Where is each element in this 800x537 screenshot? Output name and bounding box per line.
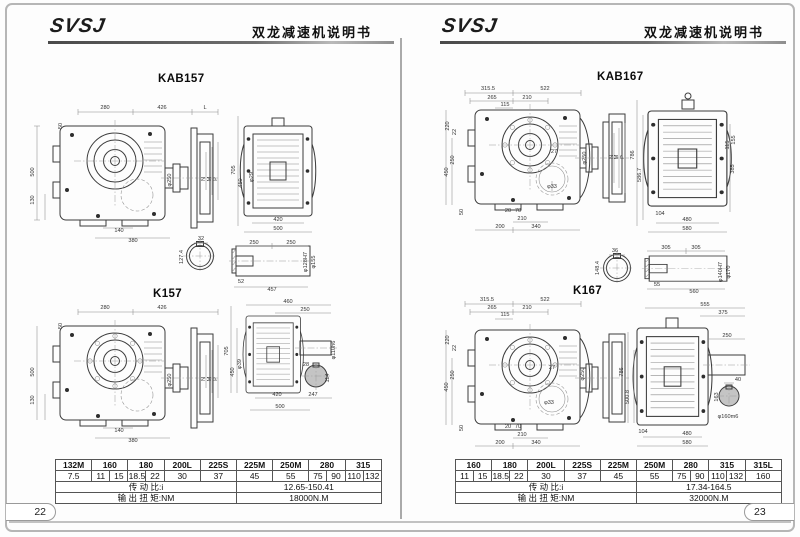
power-row: 7.5 11 15 18.5 22 30 37 45 55 75 90 110 … <box>56 471 382 482</box>
ratio-label: 传 动 比:i <box>456 482 637 493</box>
dim-label: 155 <box>731 135 737 144</box>
power-cell: 30 <box>164 471 200 482</box>
dim-label: φ250 <box>580 368 586 381</box>
power-cell: 37 <box>200 471 236 482</box>
dim-label: 130 <box>30 395 36 404</box>
dim-label: 450 <box>230 367 236 376</box>
dim-label: 522 <box>540 86 549 92</box>
model-cell: 315 <box>709 460 745 471</box>
model-row: 132M 160 180 200L 225S 225M 250M 280 315 <box>56 460 382 471</box>
power-cell: 15 <box>474 471 492 482</box>
dim-label: 250 <box>722 333 731 339</box>
dim-label: 22 <box>452 345 458 351</box>
dim-label: 280 <box>100 105 109 111</box>
power-cell: 75 <box>309 471 327 482</box>
dim-label: φ33 <box>544 400 554 406</box>
power-cell: 11 <box>456 471 474 482</box>
power-cell: 30 <box>528 471 564 482</box>
dim-label: 70 <box>515 208 521 214</box>
dim-label: 480 <box>682 217 691 223</box>
ratio-row: 传 动 比:i 17.34-164.5 <box>456 482 782 493</box>
figure-title: KAB167 <box>597 71 644 83</box>
power-cell: 18.5 <box>492 471 510 482</box>
dim-label: 20 <box>505 424 511 430</box>
dim-label: φ170 <box>726 266 732 279</box>
model-cell: 280 <box>673 460 709 471</box>
dim-label: 450 <box>444 382 450 391</box>
power-cell: 132 <box>727 471 745 482</box>
model-cell: 250M <box>273 460 309 471</box>
power-cell: 45 <box>600 471 636 482</box>
model-cell: 132M <box>56 460 92 471</box>
dim-label: 265 <box>487 305 496 311</box>
power-cell: 110 <box>345 471 363 482</box>
power-cell: 22 <box>146 471 164 482</box>
power-cell: 45 <box>236 471 272 482</box>
header-rule <box>440 41 786 44</box>
dim-label: 148.4 <box>595 261 601 275</box>
scanned-manual-spread: SVSJ 双龙减速机说明书 <box>0 0 800 537</box>
power-cell: 11 <box>92 471 110 482</box>
figure-title: K157 <box>153 288 182 300</box>
doc-title: 双龙减速机说明书 <box>644 22 764 41</box>
torque-label: 输 出 扭 矩:NM <box>456 493 637 504</box>
model-cell: 160 <box>92 460 128 471</box>
model-cell: 180 <box>492 460 528 471</box>
dim-label: φ140H7 <box>718 262 724 282</box>
dim-label: 115 <box>725 141 731 150</box>
dim-label: 104 <box>655 211 664 217</box>
dim-label: 705 <box>224 346 230 355</box>
torque-row: 输 出 扭 矩:NM 32000N.M <box>456 493 782 504</box>
dim-label: 305 <box>691 245 700 251</box>
power-cell: 7.5 <box>56 471 92 482</box>
dim-label: 27 <box>551 149 557 155</box>
model-cell: 200L <box>164 460 200 471</box>
dim-label: 560 <box>689 289 698 295</box>
dim-label: 140 <box>114 428 123 434</box>
technical-drawing-kab167-k167: KAB167 <box>425 60 795 460</box>
dim-label: 457 <box>267 287 276 293</box>
model-cell: 280 <box>309 460 345 471</box>
model-cell: 225S <box>564 460 600 471</box>
dim-label: 115 <box>501 102 510 108</box>
dim-label: 380 <box>128 438 137 444</box>
dim-label: 20 <box>505 208 511 214</box>
dim-label: 115 <box>501 312 510 318</box>
dim-label: 420 <box>273 217 282 223</box>
dim-label: 50 <box>58 123 64 129</box>
dim-label: 426 <box>157 305 166 311</box>
dim-label: 340 <box>531 440 540 446</box>
dim-label: 480 <box>682 431 691 437</box>
dim-label: 27 <box>549 365 555 371</box>
ratio-value: 17.34-164.5 <box>636 482 781 493</box>
model-row: 160 180 200L 225S 225M 250M 280 315 315L <box>456 460 782 471</box>
model-cell: 250M <box>636 460 672 471</box>
dim-label: 210 <box>517 432 526 438</box>
dim-label: 114 <box>325 374 331 383</box>
page-number-text: 22 <box>34 506 46 518</box>
dim-label: 22 <box>452 129 458 135</box>
dim-label: 55 <box>654 282 660 288</box>
dim-label: φ33 <box>547 184 557 190</box>
dim-label: 210 <box>517 216 526 222</box>
dim-label: φ128H7 <box>303 252 309 272</box>
model-cell: 225M <box>600 460 636 471</box>
dim-label: 460 <box>283 299 292 305</box>
dim-label: 130 <box>30 195 36 204</box>
dim-label: 385 <box>730 164 736 173</box>
dim-label: 786 <box>619 367 625 376</box>
dim-label: 210 <box>522 95 531 101</box>
doc-title: 双龙减速机说明书 <box>252 22 372 41</box>
dim-label: 500 <box>275 404 284 410</box>
dim-label: 500 <box>30 367 36 376</box>
model-cell: 315 <box>345 460 381 471</box>
dim-label: φ110h6 <box>331 341 337 360</box>
dim-label: 70 <box>515 424 521 430</box>
power-cell: 37 <box>564 471 600 482</box>
power-cell: 55 <box>636 471 672 482</box>
dim-label: 250 <box>249 240 258 246</box>
dim-label: 210 <box>522 305 531 311</box>
page-number-22: 22 <box>6 503 56 521</box>
dim-label: P <box>213 177 219 181</box>
technical-drawing-kab157-k157: KAB157 <box>25 60 395 460</box>
torque-row: 输 出 扭 矩:NM 18000N.M <box>56 493 382 504</box>
torque-value: 18000N.M <box>236 493 381 504</box>
dim-label: 420 <box>272 392 281 398</box>
model-cell: 200L <box>528 460 564 471</box>
dim-label: 127.4 <box>179 250 185 264</box>
dim-label: 705 <box>231 165 237 174</box>
dim-label: 250 <box>450 370 456 379</box>
ratio-label: 传 动 比:i <box>56 482 237 493</box>
dim-label: 50 <box>459 209 465 215</box>
model-cell: 225M <box>236 460 272 471</box>
dim-label: 280 <box>100 305 109 311</box>
dim-label: 380 <box>128 238 137 244</box>
dim-label: φ39 <box>237 359 243 369</box>
power-cell: 15 <box>110 471 128 482</box>
torque-value: 32000N.M <box>636 493 781 504</box>
dim-label: φ155 <box>311 256 317 269</box>
dim-label: 305 <box>661 245 670 251</box>
torque-label: 输 出 扭 矩:NM <box>56 493 237 504</box>
dim-label: 28 <box>303 362 309 368</box>
dim-label: 250 <box>286 240 295 246</box>
model-cell: 315L <box>745 460 781 471</box>
dim-label: 586.7 <box>637 168 643 182</box>
power-cell: 90 <box>327 471 345 482</box>
dim-label: 250 <box>300 307 309 313</box>
ratio-value: 12.65-150.41 <box>236 482 381 493</box>
dim-label: P <box>213 377 219 381</box>
dim-label: 52 <box>238 279 244 285</box>
model-cell: 225S <box>200 460 236 471</box>
dim-label: 315.5 <box>481 86 495 92</box>
dim-label: 375 <box>718 310 727 316</box>
dim-label: φ250 <box>582 152 588 165</box>
dim-label: 250 <box>450 155 456 164</box>
power-row: 11 15 18.5 22 30 37 45 55 75 90 110 132 … <box>456 471 782 482</box>
page-number-text: 23 <box>754 506 766 518</box>
spec-table-23: 160 180 200L 225S 225M 250M 280 315 315L… <box>455 459 782 504</box>
power-cell: 160 <box>745 471 781 482</box>
page-number-23: 23 <box>744 503 794 521</box>
dim-label: 50 <box>58 323 64 329</box>
dim-label: 104 <box>638 429 647 435</box>
dim-label: 522 <box>540 297 549 303</box>
ratio-row: 传 动 比:i 12.65-150.41 <box>56 482 382 493</box>
power-cell: 75 <box>673 471 691 482</box>
dim-label: φ250 <box>167 374 173 387</box>
power-cell: 90 <box>691 471 709 482</box>
dim-label: 580 <box>682 226 691 232</box>
model-cell: 160 <box>456 460 492 471</box>
page-23: SVSJ 双龙减速机说明书 KAB167 <box>400 0 792 537</box>
dim-label: 580 <box>682 440 691 446</box>
dim-label: 36 <box>612 248 618 254</box>
dim-label: 40 <box>735 377 741 383</box>
spec-table-22: 132M 160 180 200L 225S 225M 250M 280 315… <box>55 459 382 504</box>
page-22: SVSJ 双龙减速机说明书 <box>8 0 400 537</box>
dim-label: 340 <box>531 224 540 230</box>
swsj-logo: SVSJ <box>48 15 107 38</box>
dim-label: 315.5 <box>480 297 494 303</box>
power-cell: 18.5 <box>128 471 146 482</box>
dim-label: 140 <box>114 228 123 234</box>
dim-label: 32 <box>198 236 204 242</box>
dim-label: φ160m6 <box>718 414 739 420</box>
dim-label: 50 <box>459 425 465 431</box>
header-rule <box>48 41 394 44</box>
dim-label: 220 <box>445 121 451 130</box>
dim-label: 500 <box>30 167 36 176</box>
figure-title: K167 <box>573 285 602 297</box>
dim-label: 450 <box>238 178 244 187</box>
power-cell: 22 <box>510 471 528 482</box>
model-cell: 180 <box>128 460 164 471</box>
dim-label: 786 <box>630 150 636 159</box>
dim-label: 200 <box>495 224 504 230</box>
power-cell: 55 <box>273 471 309 482</box>
dim-label: 200 <box>495 440 504 446</box>
dim-label: 426 <box>157 105 166 111</box>
dim-label: 500.8 <box>625 390 631 404</box>
dim-label: 247 <box>308 392 317 398</box>
dim-label: 555 <box>700 302 709 308</box>
power-cell: 110 <box>709 471 727 482</box>
dim-label: φ29 <box>249 172 255 182</box>
dim-label: 500 <box>273 226 282 232</box>
figure-title: KAB157 <box>158 73 205 85</box>
power-cell: 132 <box>363 471 381 482</box>
dim-label: 163 <box>714 392 720 401</box>
dim-label: 450 <box>444 167 450 176</box>
dim-label: 220 <box>445 335 451 344</box>
dim-label: 265 <box>487 95 496 101</box>
dim-label: P <box>620 155 626 159</box>
swsj-logo: SVSJ <box>440 15 499 38</box>
dim-label: L <box>203 105 206 111</box>
dim-label: φ250 <box>167 174 173 187</box>
